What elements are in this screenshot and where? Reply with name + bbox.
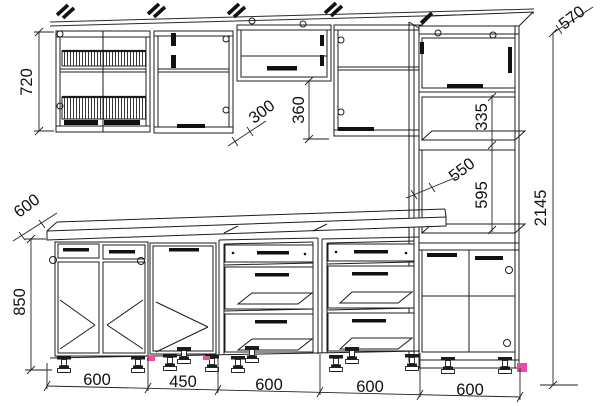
dim-label-570: 570: [556, 3, 589, 34]
base-cabinet-2: [150, 243, 216, 354]
dim-label-depth-600: 600: [11, 191, 44, 222]
foot-icon: [231, 356, 245, 373]
bracket-icon: [228, 4, 245, 17]
door-handle-icon: [177, 124, 205, 128]
flip-door-handle-icon: [267, 66, 297, 71]
dim-label-335: 335: [473, 103, 491, 131]
drawer-handle-icon: [354, 250, 388, 254]
dim-label-width-1: 600: [83, 371, 111, 389]
drawer-handle-icon: [257, 251, 289, 255]
dim-label-width-3: 600: [255, 376, 283, 394]
kitchen-drawing-canvas: 720 600 850 300 360 335 550 595 570 2145…: [0, 0, 600, 406]
dim-label-2145: 2145: [532, 190, 550, 227]
plate-rack-lower: [62, 97, 146, 119]
door-handle-icon: [338, 127, 374, 131]
foot-icon: [163, 354, 177, 371]
dim-label-360: 360: [290, 96, 308, 124]
wall-cabinet-door-2: [334, 25, 431, 136]
technical-drawing: 720 600 850 300 360 335 550 595 570 2145…: [0, 0, 600, 406]
hinge-icon: [320, 35, 324, 46]
drawer-handle-icon: [255, 273, 289, 277]
countertop: [47, 209, 446, 240]
wall-cabinet-dish-rack: [56, 31, 150, 132]
foot-icon: [345, 347, 359, 364]
bracket-icon: [57, 5, 74, 18]
door-handle-icon: [508, 47, 512, 73]
wall-cabinet-flip-up: [237, 18, 331, 81]
door-handle-icon: [475, 256, 503, 260]
drawer-handle-icon: [109, 250, 135, 254]
drawer-unit-1: [219, 224, 327, 354]
dim-label-595: 595: [473, 181, 491, 209]
foot-icon: [131, 356, 145, 373]
hinge-icon: [320, 55, 324, 66]
wall-cabinet-door: [154, 31, 233, 133]
foot-icon: [329, 355, 343, 372]
drawer-handle-icon: [255, 320, 287, 324]
tall-cabinet: [409, 12, 533, 368]
door-handle-icon: [447, 84, 483, 88]
foot-icon: [405, 354, 419, 371]
pink-marker-icon: [203, 356, 210, 360]
dim-label-width-2: 450: [169, 373, 197, 391]
bracket-icon: [148, 4, 165, 17]
drawer-handle-icon: [352, 272, 388, 276]
dim-label-width-5: 600: [456, 381, 484, 399]
dim-label-width-4: 600: [356, 378, 384, 396]
hinge-icon: [420, 42, 424, 54]
dim-label-300: 300: [246, 97, 279, 128]
door-handle-icon: [169, 248, 199, 252]
pink-marker-icon: [517, 363, 527, 372]
hinge-icon: [171, 55, 176, 68]
hinge-icon: [171, 33, 176, 46]
base-cabinet-1: [50, 242, 149, 356]
foot-icon: [57, 356, 71, 373]
drawer-unit-2: [322, 237, 419, 368]
wall-bracket-icons: [57, 3, 438, 26]
dim-label-720: 720: [18, 68, 36, 96]
drawer-handle-icon: [63, 248, 89, 252]
drawer-handle-icon: [352, 319, 386, 323]
dim-label-850: 850: [11, 288, 29, 316]
plate-rack-upper: [62, 51, 146, 66]
door-handle-icon: [427, 253, 457, 257]
